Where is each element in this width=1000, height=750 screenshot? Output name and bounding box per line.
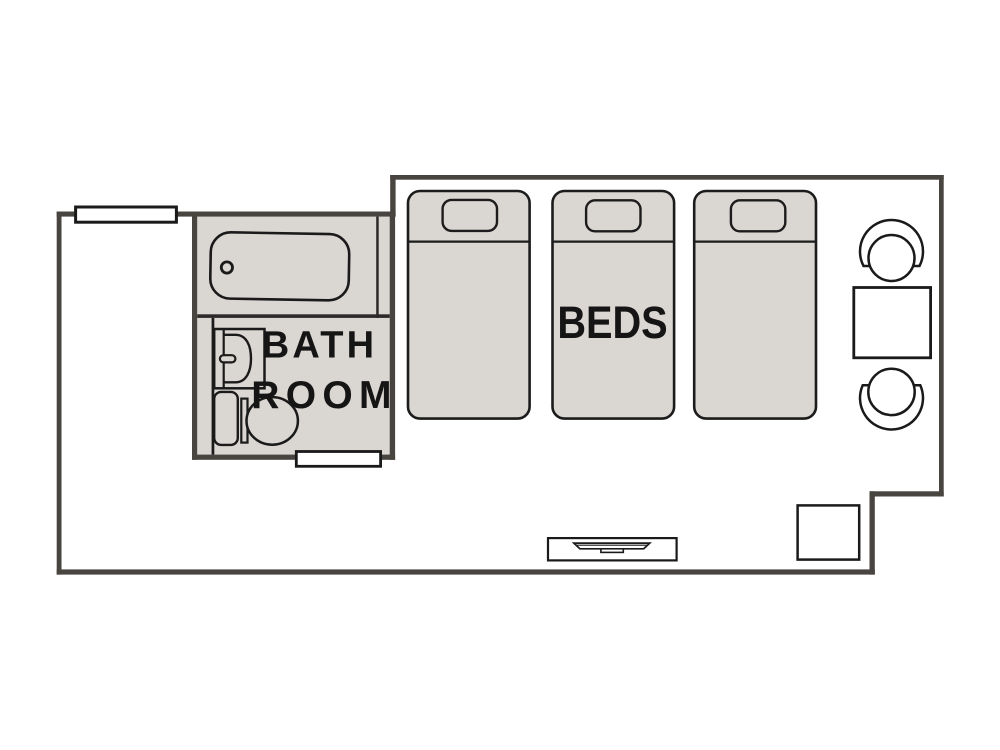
- svg-text:BATH: BATH: [262, 325, 378, 367]
- svg-text:BEDS: BEDS: [557, 298, 667, 348]
- svg-text:ROOM: ROOM: [251, 374, 398, 417]
